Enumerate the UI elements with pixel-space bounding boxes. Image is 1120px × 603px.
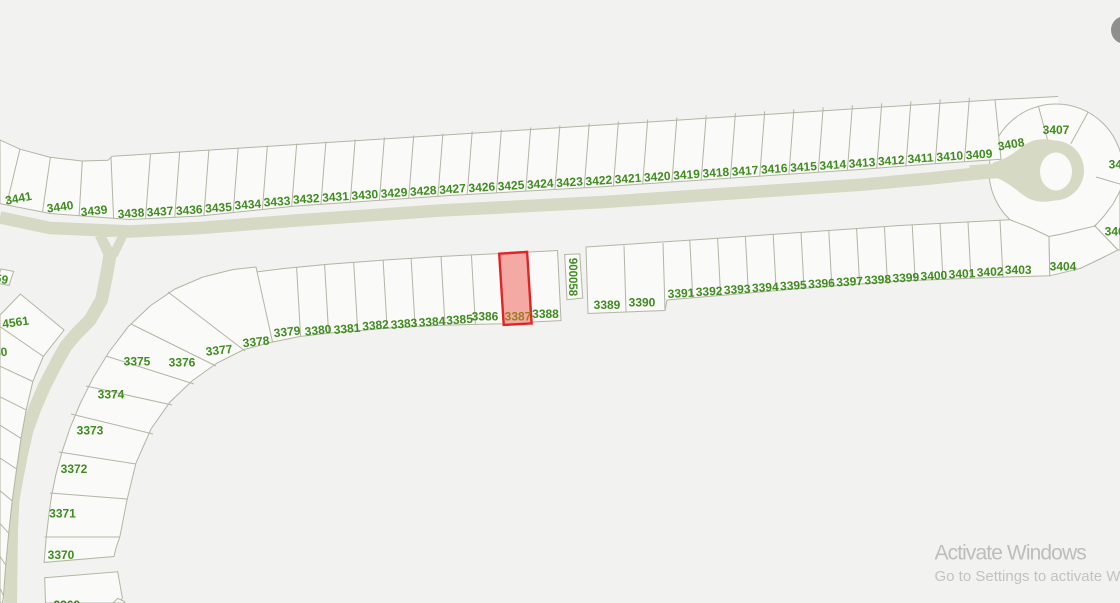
svg-text:3412: 3412 <box>877 153 905 169</box>
svg-text:3373: 3373 <box>77 423 104 437</box>
svg-text:3414: 3414 <box>819 157 847 173</box>
svg-text:3405: 3405 <box>1105 224 1120 238</box>
svg-text:3387: 3387 <box>505 310 532 324</box>
svg-text:3399: 3399 <box>892 270 920 285</box>
svg-text:3416: 3416 <box>760 161 788 177</box>
svg-text:3395: 3395 <box>780 278 808 293</box>
svg-text:3428: 3428 <box>409 183 437 199</box>
svg-text:3391: 3391 <box>667 286 695 301</box>
svg-text:3385: 3385 <box>446 312 474 328</box>
svg-text:3432: 3432 <box>292 191 320 207</box>
svg-text:3375: 3375 <box>124 354 151 368</box>
svg-text:3410: 3410 <box>936 148 964 164</box>
svg-text:3419: 3419 <box>673 167 701 183</box>
svg-text:3430: 3430 <box>351 187 379 203</box>
svg-text:3436: 3436 <box>175 202 203 218</box>
svg-text:3418: 3418 <box>702 165 730 181</box>
svg-text:3403: 3403 <box>1005 263 1032 277</box>
svg-text:3393: 3393 <box>724 282 752 297</box>
svg-text:3371: 3371 <box>49 506 76 520</box>
svg-text:3397: 3397 <box>836 274 864 289</box>
svg-text:3438: 3438 <box>117 205 145 221</box>
svg-text:3379: 3379 <box>273 323 301 340</box>
svg-text:3431: 3431 <box>322 189 350 205</box>
svg-text:3413: 3413 <box>848 155 876 171</box>
svg-text:3407: 3407 <box>1043 123 1070 137</box>
svg-text:3396: 3396 <box>808 276 836 291</box>
svg-text:3377: 3377 <box>205 342 233 359</box>
svg-text:3437: 3437 <box>146 204 174 220</box>
svg-text:3422: 3422 <box>585 173 613 189</box>
svg-text:3398: 3398 <box>864 272 892 287</box>
svg-text:3386: 3386 <box>472 310 499 324</box>
svg-text:3421: 3421 <box>614 171 642 187</box>
svg-text:3400: 3400 <box>920 268 948 283</box>
svg-text:3388: 3388 <box>532 307 559 321</box>
svg-text:Go to Settings to activate Win: Go to Settings to activate Windows <box>935 568 1120 585</box>
svg-text:3424: 3424 <box>526 176 554 192</box>
svg-text:3378: 3378 <box>242 333 270 350</box>
svg-text:3411: 3411 <box>907 150 934 166</box>
svg-text:3433: 3433 <box>263 194 291 210</box>
svg-text:900058: 900058 <box>566 258 578 297</box>
svg-text:3372: 3372 <box>61 462 88 476</box>
svg-text:3381: 3381 <box>333 321 361 337</box>
svg-text:3384: 3384 <box>418 314 446 330</box>
svg-text:3404: 3404 <box>1050 259 1077 273</box>
svg-text:3401: 3401 <box>948 266 976 281</box>
svg-text:3369: 3369 <box>53 598 80 603</box>
svg-text:3392: 3392 <box>695 284 723 299</box>
svg-text:3429: 3429 <box>380 185 408 201</box>
svg-text:3415: 3415 <box>790 159 818 175</box>
svg-text:3406: 3406 <box>1109 157 1120 171</box>
svg-text:Activate Windows: Activate Windows <box>935 542 1087 565</box>
svg-text:3374: 3374 <box>98 387 125 401</box>
svg-text:3370: 3370 <box>48 548 75 562</box>
svg-text:3423: 3423 <box>556 174 584 190</box>
svg-text:3394: 3394 <box>752 280 780 295</box>
svg-text:3425: 3425 <box>497 178 525 194</box>
svg-text:3426: 3426 <box>468 179 496 195</box>
svg-text:3389: 3389 <box>594 298 621 312</box>
svg-text:3390: 3390 <box>629 295 656 309</box>
svg-text:3409: 3409 <box>965 146 993 162</box>
svg-text:3376: 3376 <box>169 355 196 369</box>
svg-text:3380: 3380 <box>304 322 332 339</box>
svg-text:3435: 3435 <box>205 200 233 216</box>
svg-text:3382: 3382 <box>362 317 390 333</box>
svg-text:3434: 3434 <box>234 197 262 213</box>
svg-text:3417: 3417 <box>731 163 759 179</box>
svg-text:3402: 3402 <box>976 264 1004 279</box>
svg-text:3427: 3427 <box>439 181 467 197</box>
svg-text:3439: 3439 <box>80 202 108 219</box>
svg-text:3383: 3383 <box>390 316 418 332</box>
svg-text:3420: 3420 <box>643 169 671 185</box>
